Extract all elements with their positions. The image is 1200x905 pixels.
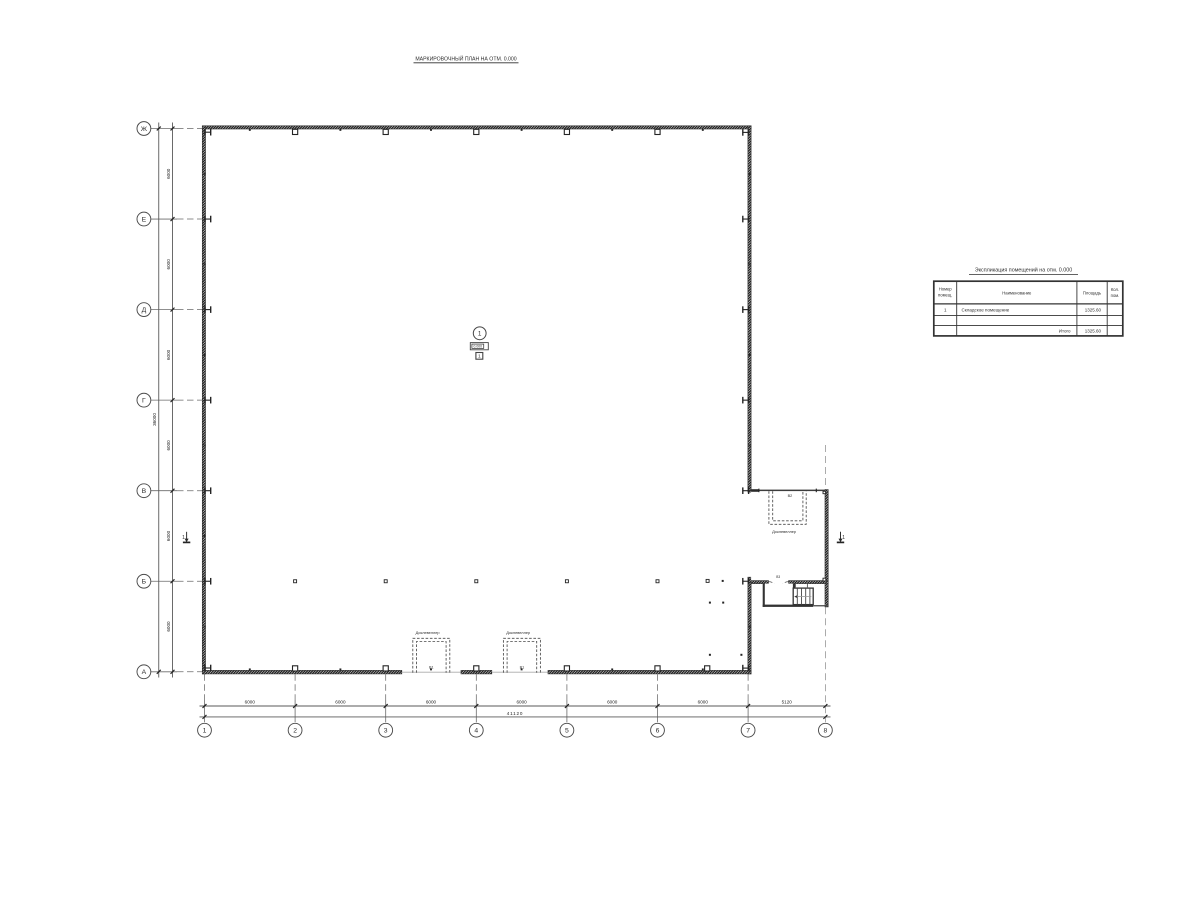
svg-text:Ж: Ж [141, 126, 148, 133]
svg-text:2: 2 [293, 728, 297, 735]
svg-text:36000: 36000 [152, 413, 157, 426]
svg-text:6000: 6000 [166, 621, 171, 632]
svg-text:1: 1 [182, 535, 185, 541]
svg-text:1: 1 [478, 354, 481, 360]
svg-text:А: А [142, 669, 147, 676]
svg-text:7: 7 [746, 728, 750, 735]
svg-text:1: 1 [203, 728, 207, 735]
svg-text:пом.: пом. [1111, 293, 1120, 298]
svg-text:Складское помещение: Складское помещение [962, 308, 1010, 313]
svg-text:Экспликация помещений на отм.: Экспликация помещений на отм. 0.000 [975, 266, 1073, 273]
svg-text:6000: 6000 [166, 349, 171, 360]
svg-text:1325.60: 1325.60 [1085, 308, 1102, 313]
svg-text:1: 1 [842, 535, 845, 541]
svg-text:Доклевеллер: Доклевеллер [416, 630, 440, 635]
svg-text:Площадь: Площадь [1083, 291, 1102, 296]
svg-text:Доклевеллер: Доклевеллер [772, 529, 796, 534]
svg-text:6000: 6000 [166, 530, 171, 541]
svg-text:1: 1 [478, 331, 482, 338]
svg-text:Номер: Номер [939, 287, 953, 292]
svg-text:1325.60: 1325.60 [1085, 329, 1102, 334]
svg-text:3: 3 [384, 728, 388, 735]
svg-text:5120: 5120 [782, 700, 793, 705]
svg-text:6000: 6000 [166, 168, 171, 179]
svg-text:6000: 6000 [698, 700, 709, 705]
svg-text:Кол.: Кол. [1111, 287, 1119, 292]
svg-text:В3: В3 [776, 575, 780, 579]
svg-text:6000: 6000 [516, 700, 527, 705]
svg-text:Е: Е [142, 216, 147, 223]
svg-text:6000: 6000 [607, 700, 618, 705]
svg-text:0.000: 0.000 [474, 344, 483, 348]
svg-text:В2: В2 [788, 494, 793, 498]
svg-text:6: 6 [656, 728, 660, 735]
svg-text:Итого: Итого [1059, 329, 1071, 334]
svg-text:6000: 6000 [245, 700, 256, 705]
svg-text:8: 8 [824, 728, 828, 735]
svg-text:Б: Б [142, 579, 147, 586]
svg-text:Г: Г [142, 397, 146, 404]
svg-text:6000: 6000 [426, 700, 437, 705]
svg-text:6000: 6000 [166, 440, 171, 451]
svg-text:МАРКИРОВОЧНЫЙ ПЛАН НА ОТМ. 0.0: МАРКИРОВОЧНЫЙ ПЛАН НА ОТМ. 0.000 [415, 55, 516, 63]
svg-text:5: 5 [565, 728, 569, 735]
svg-text:Доклевеллер: Доклевеллер [506, 630, 530, 635]
svg-text:помещ.: помещ. [938, 293, 952, 298]
svg-text:Д: Д [142, 307, 147, 314]
svg-text:4: 4 [474, 728, 478, 735]
svg-text:В: В [142, 488, 147, 495]
svg-text:41120: 41120 [507, 711, 523, 716]
svg-text:6000: 6000 [166, 259, 171, 270]
svg-text:6000: 6000 [335, 700, 346, 705]
svg-text:Наименование: Наименование [1002, 291, 1032, 296]
